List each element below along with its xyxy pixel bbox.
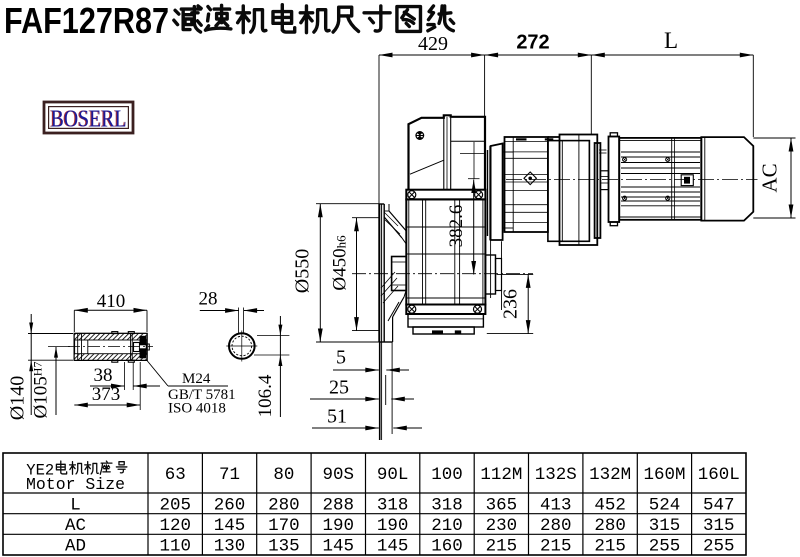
svg-text:28: 28 <box>199 289 218 310</box>
svg-text:63: 63 <box>165 465 186 485</box>
svg-text:106.4: 106.4 <box>255 374 276 417</box>
svg-text:215: 215 <box>486 537 518 557</box>
svg-text:260: 260 <box>214 496 246 516</box>
svg-text:FAF127R87: FAF127R87 <box>4 0 169 41</box>
svg-text:L: L <box>664 28 678 53</box>
svg-text:M24: M24 <box>182 371 211 387</box>
svg-text:145: 145 <box>377 537 409 557</box>
svg-text:413: 413 <box>540 496 572 516</box>
svg-text:25: 25 <box>329 377 349 399</box>
svg-text:210: 210 <box>431 516 463 536</box>
svg-text:132M: 132M <box>589 465 631 485</box>
svg-text:AD: AD <box>65 537 86 557</box>
svg-text:230: 230 <box>486 516 518 536</box>
svg-text:280: 280 <box>268 496 300 516</box>
svg-text:215: 215 <box>594 537 626 557</box>
svg-text:38: 38 <box>94 365 113 386</box>
svg-text:272: 272 <box>516 32 549 54</box>
svg-text:135: 135 <box>268 537 300 557</box>
svg-text:BOSERL: BOSERL <box>51 106 127 133</box>
svg-text:110: 110 <box>159 537 191 557</box>
svg-text:452: 452 <box>594 496 626 516</box>
svg-text:130: 130 <box>214 537 246 557</box>
svg-text:170: 170 <box>268 516 300 536</box>
svg-text:132S: 132S <box>535 465 577 485</box>
svg-text:AC: AC <box>65 516 86 536</box>
svg-text:524: 524 <box>649 496 681 516</box>
svg-text:L: L <box>70 496 81 516</box>
svg-text:315: 315 <box>703 516 735 536</box>
svg-text:318: 318 <box>377 496 409 516</box>
svg-text:429: 429 <box>418 33 448 55</box>
svg-text:190: 190 <box>323 516 355 536</box>
svg-text:90S: 90S <box>323 465 355 485</box>
svg-text:160M: 160M <box>643 465 685 485</box>
svg-text:145: 145 <box>214 516 246 536</box>
svg-text:318: 318 <box>431 496 463 516</box>
svg-text:365: 365 <box>486 496 518 516</box>
svg-text:236: 236 <box>500 289 522 319</box>
svg-text:ISO 4018: ISO 4018 <box>168 401 226 417</box>
svg-text:410: 410 <box>97 291 126 312</box>
svg-text:288: 288 <box>323 496 355 516</box>
svg-text:255: 255 <box>703 537 735 557</box>
svg-text:215: 215 <box>540 537 572 557</box>
svg-text:280: 280 <box>594 516 626 536</box>
svg-text:315: 315 <box>649 516 681 536</box>
svg-text:71: 71 <box>219 465 240 485</box>
svg-text:160: 160 <box>431 537 463 557</box>
svg-text:255: 255 <box>649 537 681 557</box>
svg-text:120: 120 <box>159 516 191 536</box>
svg-text:Ø450h6: Ø450h6 <box>330 235 351 291</box>
svg-text:100: 100 <box>431 465 463 485</box>
svg-text:205: 205 <box>159 496 191 516</box>
svg-text:Motor Size: Motor Size <box>26 475 125 494</box>
svg-text:160L: 160L <box>698 465 740 485</box>
svg-text:AC: AC <box>758 163 782 192</box>
svg-text:80: 80 <box>273 465 294 485</box>
svg-text:90L: 90L <box>377 465 409 485</box>
svg-text:Ø550: Ø550 <box>292 249 314 293</box>
svg-text:Ø140: Ø140 <box>7 376 29 420</box>
svg-text:382.6: 382.6 <box>446 205 467 248</box>
svg-text:112M: 112M <box>480 465 522 485</box>
svg-text:190: 190 <box>377 516 409 536</box>
svg-text:280: 280 <box>540 516 572 536</box>
svg-text:373: 373 <box>92 384 121 405</box>
svg-text:5: 5 <box>336 347 346 369</box>
svg-text:547: 547 <box>703 496 735 516</box>
svg-text:Ø105H7: Ø105H7 <box>31 362 52 419</box>
svg-text:145: 145 <box>323 537 355 557</box>
svg-text:51: 51 <box>327 406 347 428</box>
